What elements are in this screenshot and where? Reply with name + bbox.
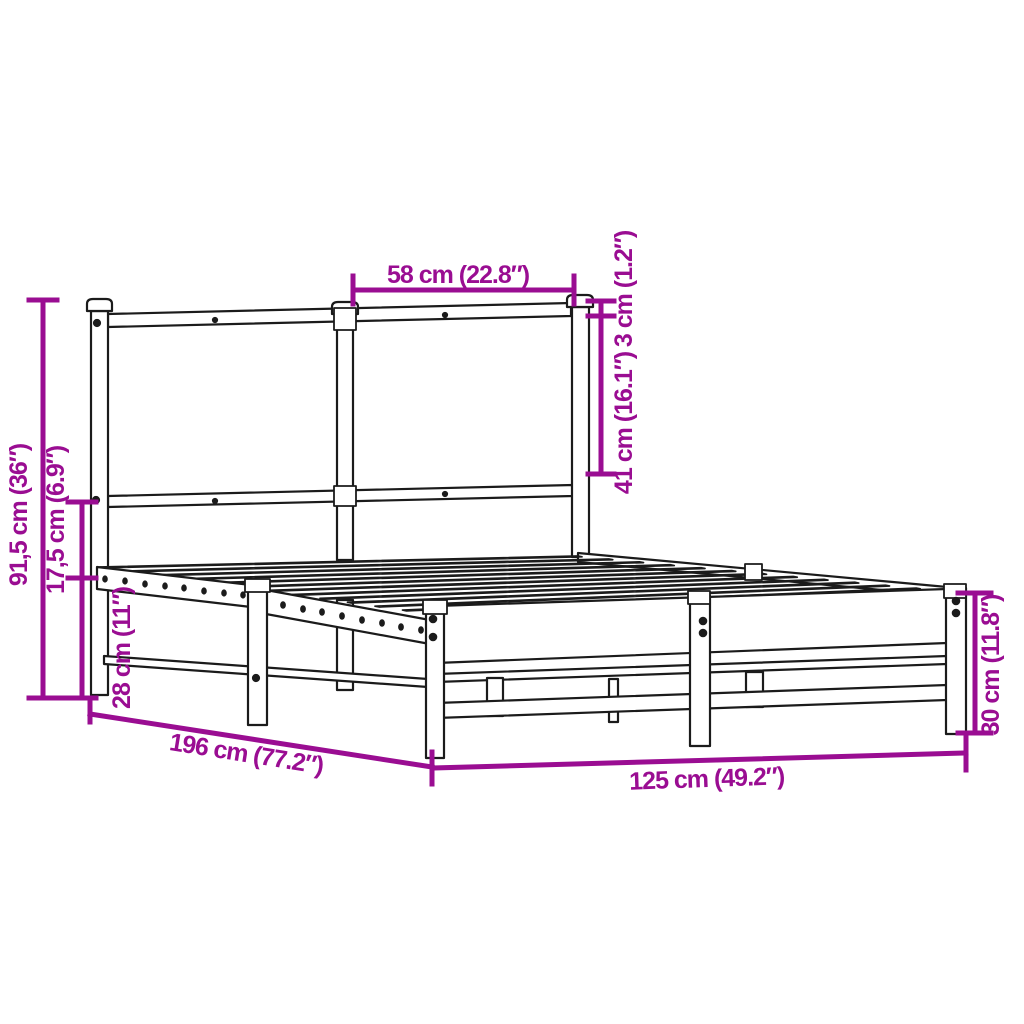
label-frame-height: 30 cm (11.8″): [977, 594, 1005, 735]
foot-middle-post-bracket: [688, 591, 710, 604]
foot-left-leg-bracket: [423, 600, 447, 614]
side-middle-leg-bracket: [245, 579, 270, 592]
headboard-middle-post: [337, 314, 353, 560]
screw-dot: [213, 499, 217, 503]
foot-left-leg: [426, 603, 444, 758]
headboard-bracket-top: [334, 308, 356, 330]
screw-dot: [253, 675, 259, 681]
screw-dot: [700, 630, 706, 636]
label-bed-width: 125 cm (49.2″): [629, 762, 786, 795]
screw-dot: [443, 313, 447, 317]
screw-dot: [700, 618, 706, 624]
screw-dot: [443, 492, 447, 496]
headboard-right-post: [572, 307, 589, 557]
screw-dot: [94, 320, 100, 326]
bed-drawing: [87, 295, 966, 758]
screw-dot: [953, 610, 959, 616]
label-total-height: 91,5 cm (36″): [5, 443, 33, 586]
screw-dot: [430, 634, 436, 640]
label-side-rail-height: 17,5 cm (6.9″): [42, 445, 70, 594]
far-rail-bracket: [745, 564, 762, 580]
screw-dot: [213, 318, 217, 322]
label-under-bed-clearance: 28 cm (11″): [108, 586, 136, 709]
bed-dimension-diagram: 58 cm (22.8″) 3 cm (1.2″) 41 cm (16.1″) …: [0, 0, 1024, 1024]
screw-dot: [430, 616, 436, 622]
diagram-canvas: 58 cm (22.8″) 3 cm (1.2″) 41 cm (16.1″) …: [0, 0, 1024, 1024]
headboard-bracket-bottom: [334, 486, 356, 506]
label-headboard-panel-width: 58 cm (22.8″): [387, 261, 530, 289]
headboard-left-post-cap: [87, 299, 112, 311]
label-headboard-panel-height: 41 cm (16.1″): [610, 351, 638, 494]
screw-dot: [953, 598, 959, 604]
label-post-cap-offset: 3 cm (1.2″): [610, 230, 638, 347]
side-middle-leg: [248, 582, 267, 725]
